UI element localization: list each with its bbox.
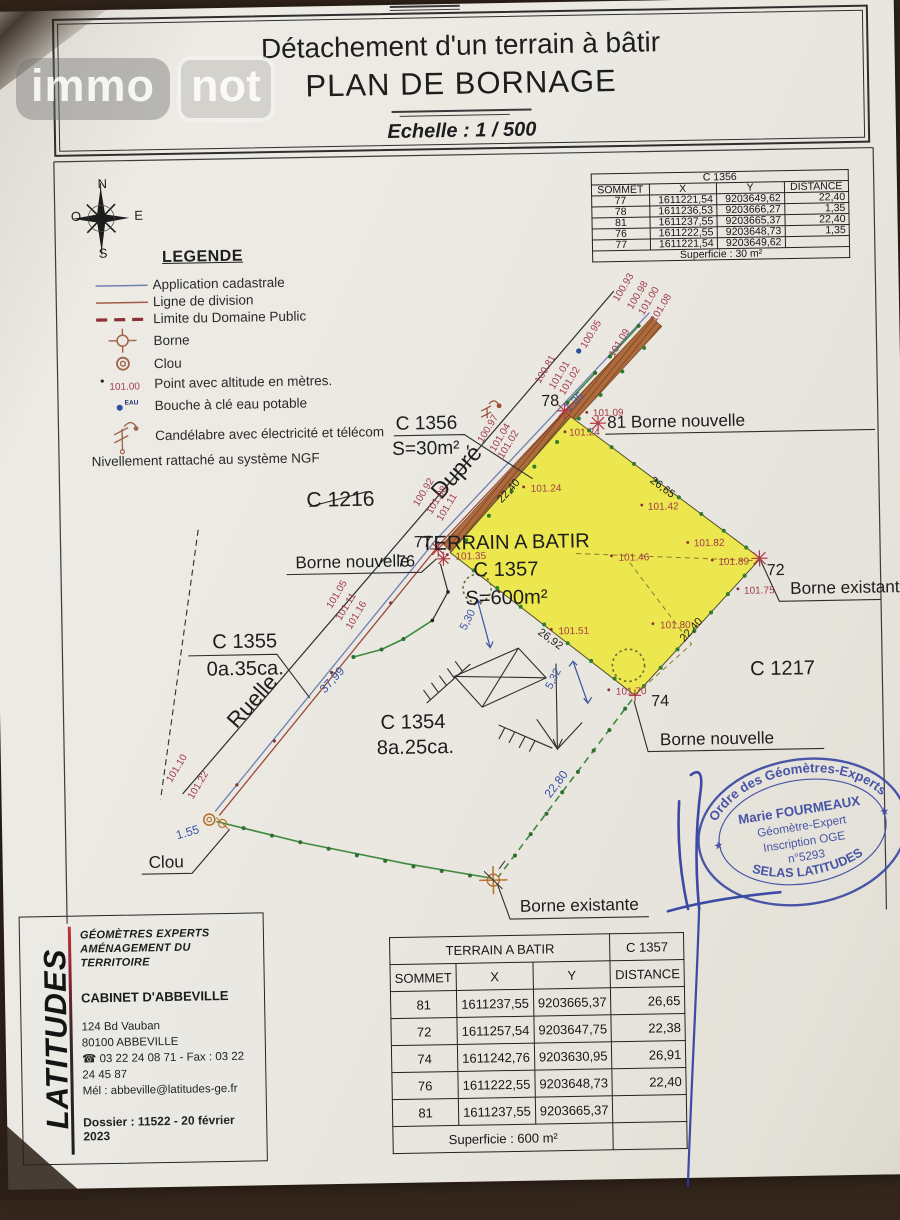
paper-sheet: Détachement d'un terrain à bâtir PLAN DE… xyxy=(0,0,900,1190)
plan-label: S=600m² xyxy=(465,586,548,609)
firm-cartouche: LATITUDES GÉOMÈTRES EXPERTS AMÉNAGEMENT … xyxy=(19,912,268,1165)
plan-label: 101.09 xyxy=(593,408,624,420)
plan-label: 101.82 xyxy=(694,538,725,550)
plan-label: O xyxy=(71,209,81,224)
plan-label: 5,30 xyxy=(458,608,478,633)
svg-text:EAU: EAU xyxy=(125,399,139,406)
plan-label: Borne nouvelle xyxy=(660,728,774,749)
fence-from-76 xyxy=(431,564,448,621)
immonot-logo-not: not xyxy=(177,56,275,122)
plan-label: 101.51 xyxy=(558,626,589,638)
plan-label: E xyxy=(134,208,143,223)
plan-label: 100.95 xyxy=(579,318,604,350)
altitude-point-icon: 101.00 xyxy=(92,375,154,394)
plan-label: Borne existante xyxy=(790,577,900,598)
legend-item: Candélabre avec électricité et télécom xyxy=(93,411,424,455)
clou-icon xyxy=(92,354,154,373)
plan-label: 22,80 xyxy=(541,768,571,801)
firm-tagline-2: AMÉNAGEMENT DU TERRITOIRE xyxy=(80,939,257,970)
plan-label: 101.80 xyxy=(660,620,691,632)
public-domain-limit-icon xyxy=(91,315,153,324)
immonot-watermark: immo not xyxy=(16,56,275,122)
borne-existante-marker xyxy=(479,861,508,895)
water-valve-icon: EAU xyxy=(93,396,155,415)
plan-label: 0a.35ca. xyxy=(206,657,284,680)
plan-label: 78 xyxy=(541,392,559,410)
plan-label: 1.55 xyxy=(174,822,201,842)
plan-label: 37,99 xyxy=(317,664,348,696)
svg-text:101.00: 101.00 xyxy=(109,381,140,393)
borne-icon xyxy=(91,327,153,354)
division-line-icon xyxy=(91,298,153,307)
plan-label: Borne existante xyxy=(520,895,639,916)
plan-label: 101.42 xyxy=(648,501,679,513)
plan-label: 72 xyxy=(767,561,785,579)
plan-label: 101.89 xyxy=(718,557,749,569)
plan-label: TERRAIN A BATIR xyxy=(421,530,590,555)
legend: LEGENDE Application cadastrale Ligne de … xyxy=(90,244,424,455)
streetlamp-icon xyxy=(93,416,156,455)
plan-label: N xyxy=(97,176,107,191)
clou-marker xyxy=(204,814,229,830)
stamp-star-right: ★ xyxy=(879,805,891,818)
plan-label: 101.35 xyxy=(455,551,486,563)
plan-label: 77 xyxy=(414,533,432,551)
plan-label: C 1355 xyxy=(212,630,277,653)
plan-label: 101.75 xyxy=(744,585,775,597)
parcel-c1357 xyxy=(448,413,763,698)
cadastral-line-icon xyxy=(91,281,153,290)
plan-label: 101.24 xyxy=(569,427,600,439)
surveyor-stamp: Ordre des Géomètres-Experts SELAS LATITU… xyxy=(679,733,900,932)
water-valve-icon xyxy=(576,348,581,353)
plan-label: Borne nouvelle xyxy=(295,551,409,572)
legend-title: LEGENDE xyxy=(162,244,420,266)
plan-label: C 1354 xyxy=(380,711,445,734)
stamp-star-left: ★ xyxy=(713,839,725,852)
plan-label: 101.10 xyxy=(165,752,190,784)
plan-label: 101.70 xyxy=(616,686,647,698)
plan-label: 101.46 xyxy=(618,552,649,564)
office-name: CABINET D'ABBEVILLE xyxy=(81,987,258,1005)
plan-label: C 1216 xyxy=(306,488,375,512)
phone-fax: ☎ 03 22 24 08 71 - Fax : 03 22 24 45 87 xyxy=(82,1048,260,1083)
plan-label: 101.24 xyxy=(531,483,562,495)
dossier-reference: Dossier : 11522 - 20 février 2023 xyxy=(83,1112,260,1143)
plan-label: 5,32 xyxy=(543,667,563,692)
email: Mél : abbeville@latitudes-ge.fr xyxy=(83,1080,260,1099)
plan-label: C 1217 xyxy=(750,657,815,680)
plan-label: 8a.25ca. xyxy=(377,736,455,759)
plan-label: 81 Borne nouvelle xyxy=(607,411,745,432)
plan-label: Clou xyxy=(148,852,184,872)
immonot-logo-immo: immo xyxy=(16,58,170,120)
plan-label: 74 xyxy=(651,692,669,710)
